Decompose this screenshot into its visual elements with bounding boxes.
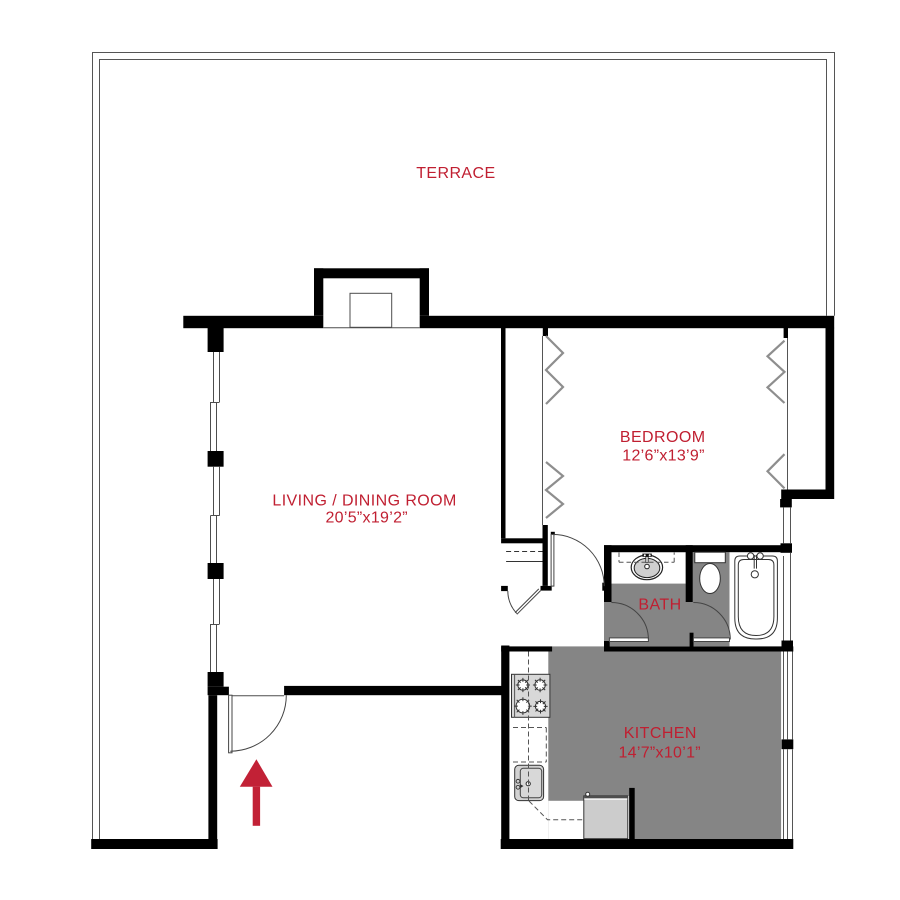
svg-text:BATH: BATH — [638, 597, 681, 614]
svg-text:KITCHEN: KITCHEN — [624, 725, 697, 742]
svg-text:BEDROOM: BEDROOM — [620, 429, 706, 446]
svg-text:TERRACE: TERRACE — [416, 165, 495, 182]
svg-text:12’6”x13’9”: 12’6”x13’9” — [622, 448, 704, 465]
svg-text:20’5”x19’2”: 20’5”x19’2” — [325, 510, 407, 527]
svg-text:14’7”x10’1”: 14’7”x10’1” — [618, 745, 700, 762]
svg-text:LIVING / DINING ROOM: LIVING / DINING ROOM — [272, 492, 456, 509]
